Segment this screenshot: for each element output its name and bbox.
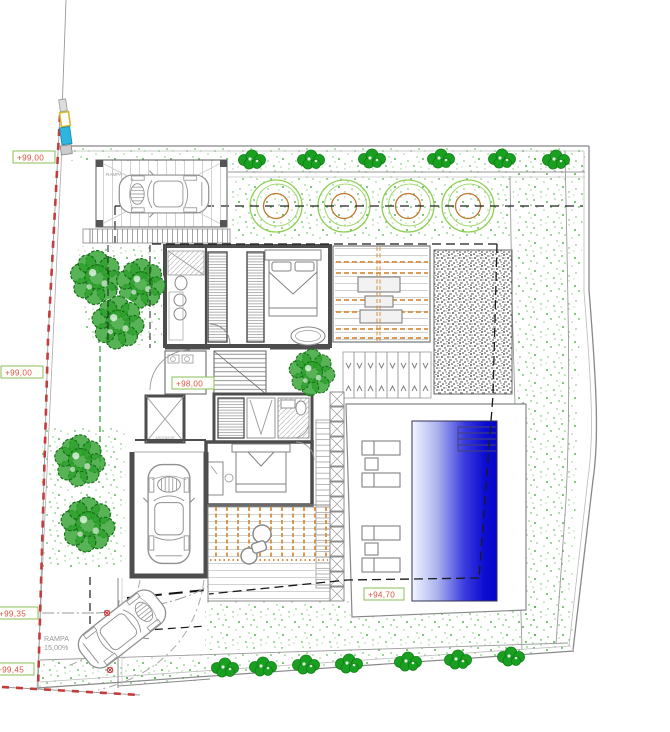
pool-terrace xyxy=(346,404,526,617)
level-ramp-bottom-text: +99,45 xyxy=(0,666,24,675)
mid-garage xyxy=(132,440,206,576)
timber-deck-lower xyxy=(208,505,330,601)
elevator: ASCENSOR xyxy=(146,396,184,442)
master-suite xyxy=(165,246,330,346)
level-left-text: +99,00 xyxy=(5,369,32,378)
garage-car-top xyxy=(119,171,208,217)
level-label-ramp-top: +99,35 xyxy=(0,607,38,619)
site-plan-canvas: RAMPA ASCENSOR xyxy=(0,0,670,732)
driveway-ramp-label: RAMPA xyxy=(44,634,69,643)
bed-master xyxy=(265,250,321,316)
level-top-text: +99,00 xyxy=(17,154,44,163)
bed-guest xyxy=(232,444,290,492)
level-label-pool: +94,70 xyxy=(364,588,404,600)
level-entry-text: +98,00 xyxy=(176,380,203,389)
garage-ramp-label: RAMPA xyxy=(106,172,123,177)
level-label-entry: +98,00 xyxy=(172,377,214,389)
site-plan-svg: RAMPA ASCENSOR xyxy=(0,0,670,732)
garage-car-mid xyxy=(143,465,194,564)
level-pool-text: +94,70 xyxy=(368,591,395,600)
level-ramp-top-text: +99,35 xyxy=(0,610,26,619)
driveway-slope-label: 15,00% xyxy=(44,643,69,652)
north-garage: RAMPA xyxy=(83,160,230,243)
level-label-left: +99,00 xyxy=(1,366,43,378)
timber-deck-upper xyxy=(333,246,430,342)
gravel-bed xyxy=(434,250,512,394)
level-label-ramp-bottom: +99,45 xyxy=(0,663,34,675)
level-label-top: +99,00 xyxy=(13,151,55,163)
pergola-posts xyxy=(330,392,344,601)
survey-marker xyxy=(54,99,75,155)
louvre-pergola xyxy=(343,352,431,398)
guest-suite xyxy=(206,394,314,505)
